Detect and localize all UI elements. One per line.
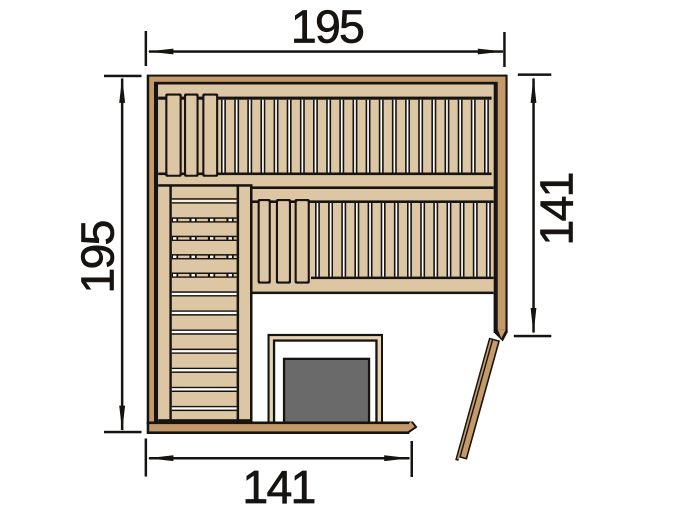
svg-text:141: 141	[531, 173, 583, 245]
svg-text:195: 195	[291, 1, 363, 53]
svg-text:195: 195	[72, 221, 124, 293]
svg-text:141: 141	[242, 461, 314, 513]
